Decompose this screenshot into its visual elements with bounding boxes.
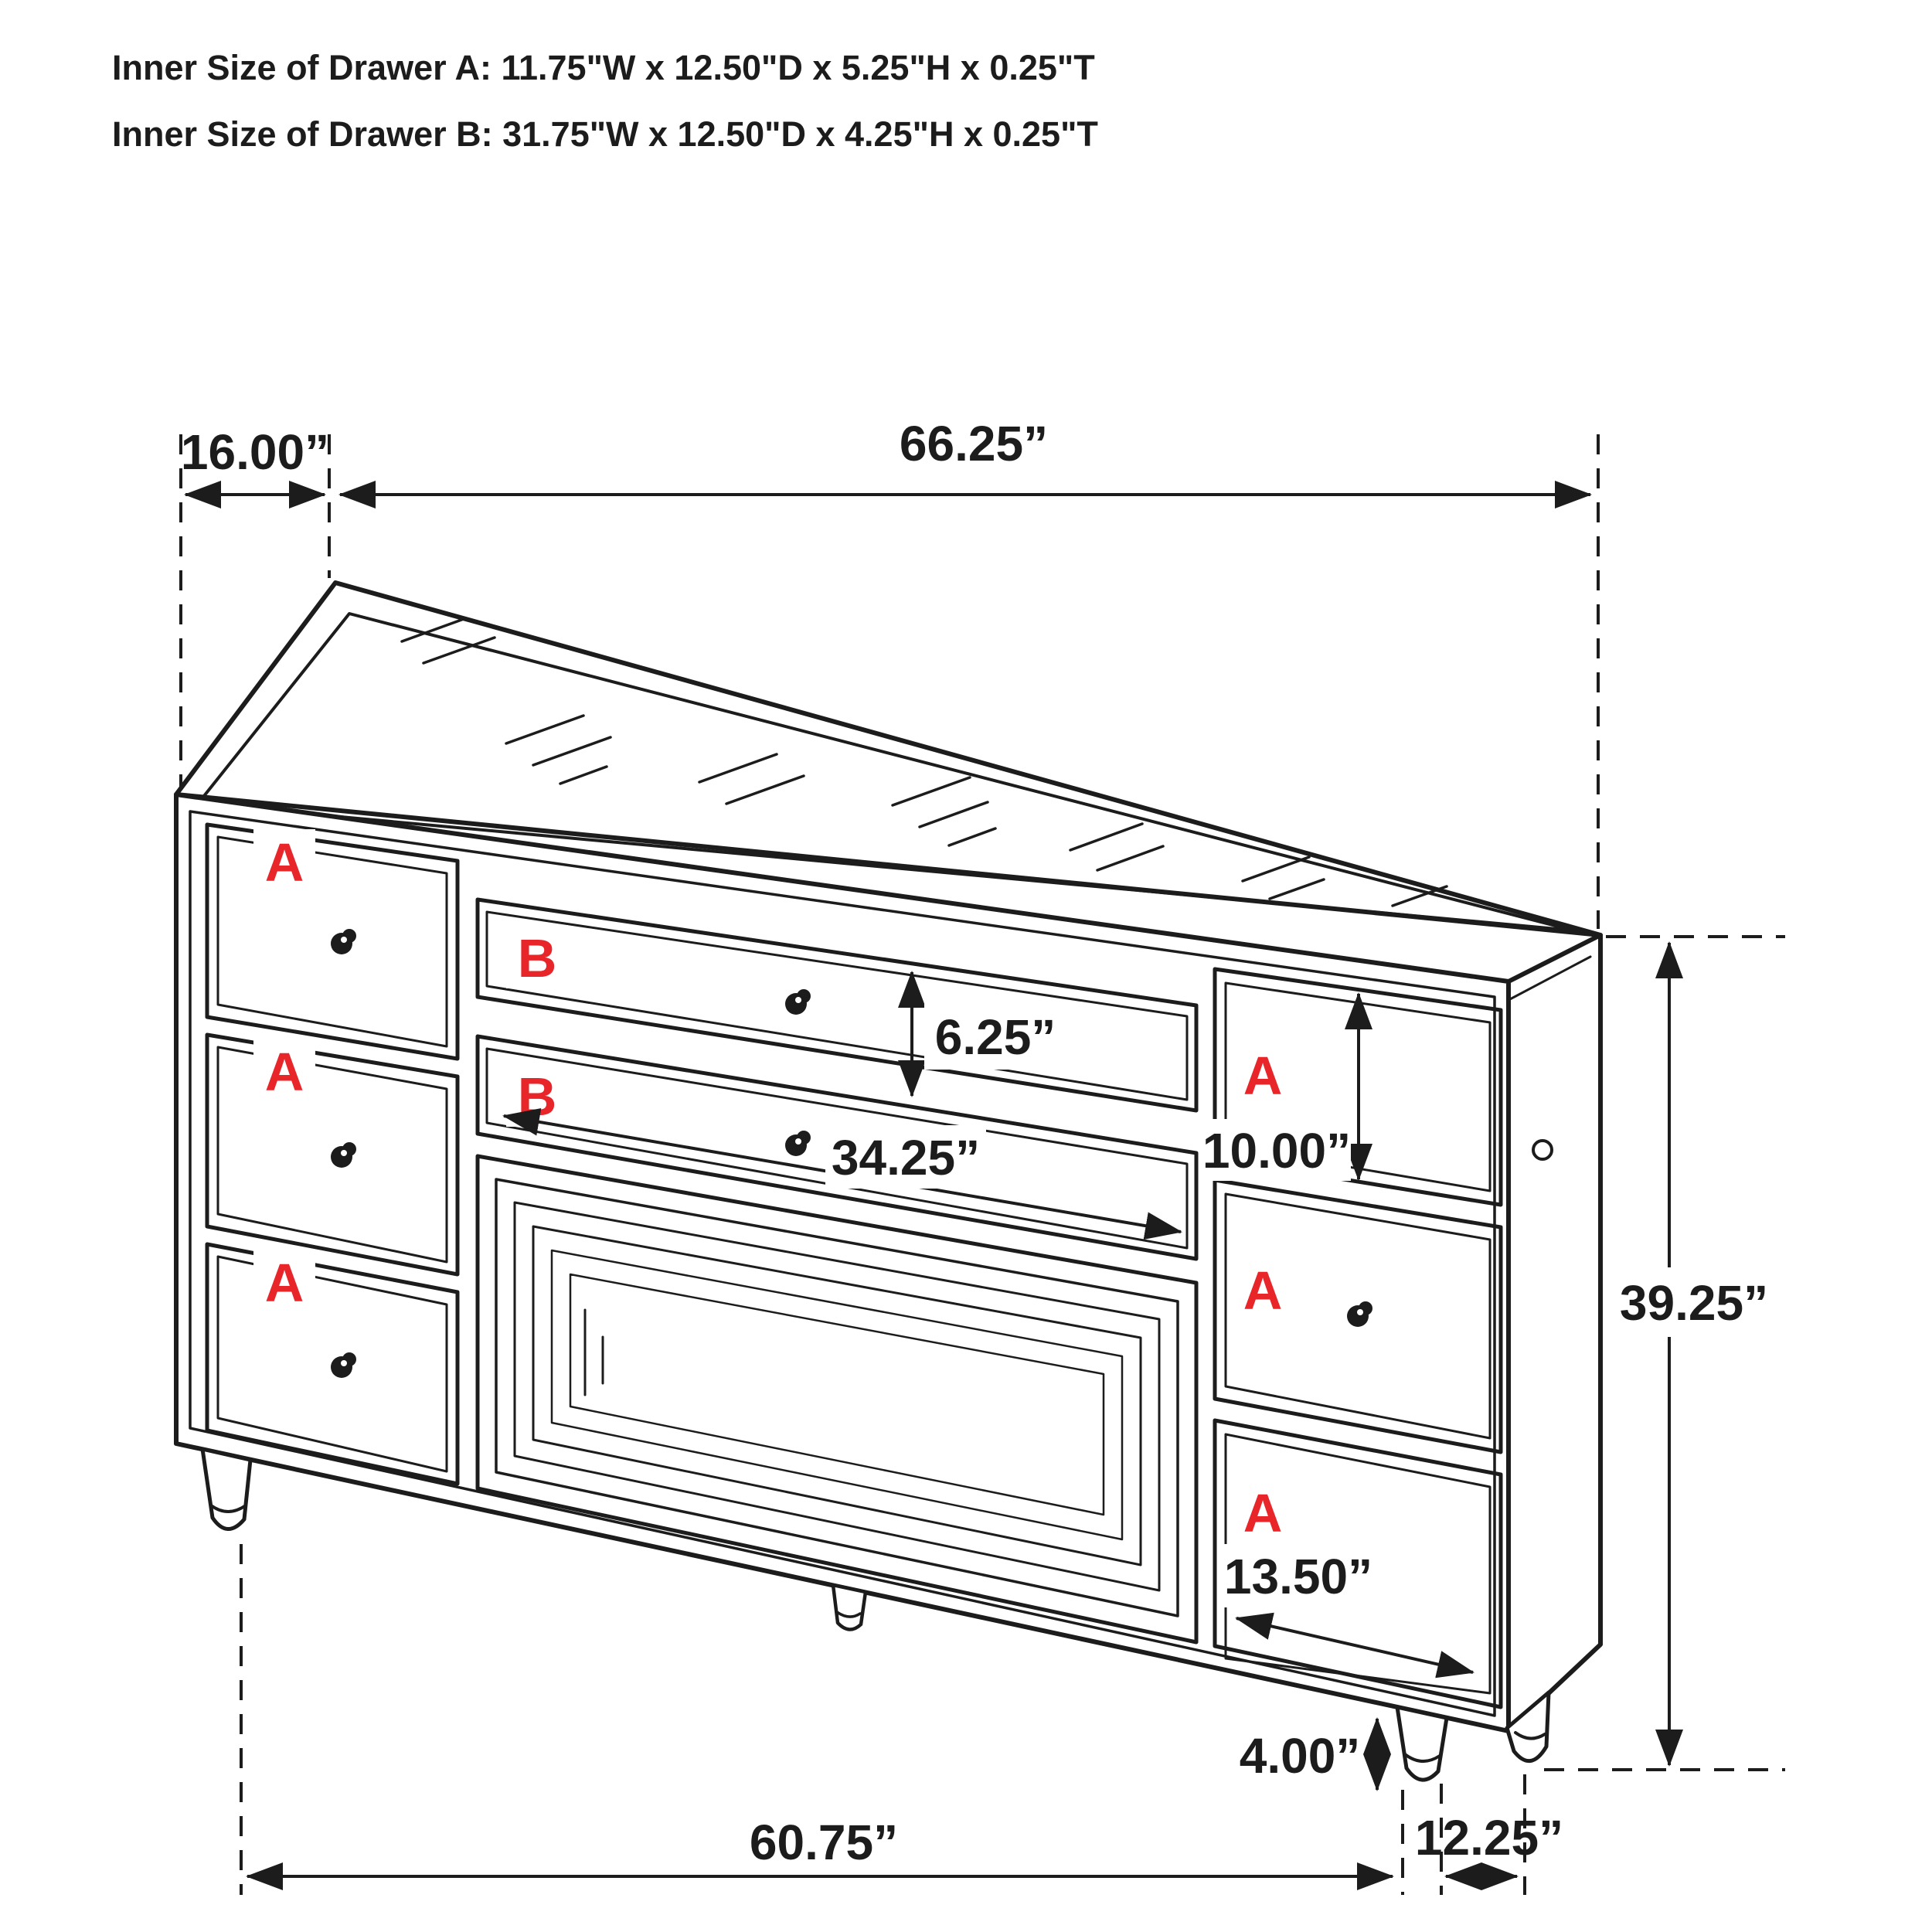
title-line-1: Inner Size of Drawer A: 11.75"W x 12.50"… <box>112 48 1095 87</box>
furniture-dimension-diagram: Inner Size of Drawer A: 11.75"W x 12.50"… <box>0 0 1932 1932</box>
drawer-marker-a-left-3: A <box>265 1253 304 1313</box>
dim-label-right-top-drawer-height: 10.00” <box>1202 1123 1351 1179</box>
dim-label-front-width-at-feet: 60.75” <box>750 1815 898 1870</box>
drawer-marker-b-1: B <box>518 928 557 988</box>
drawer-marker-a-left-1: A <box>265 832 304 893</box>
dim-label-right-bottom-drawer-width: 13.50” <box>1224 1549 1372 1604</box>
drawer-marker-a-right-3: A <box>1243 1483 1283 1543</box>
side-panel-face <box>1509 935 1600 1731</box>
dim-label-foot-height: 4.00” <box>1240 1728 1361 1784</box>
drawer-marker-a-right-1: A <box>1243 1046 1283 1106</box>
foot-middle <box>833 1585 866 1630</box>
title-line-2: Inner Size of Drawer B: 31.75"W x 12.50"… <box>112 114 1098 154</box>
side-panel <box>1509 935 1600 1731</box>
drawer-marker-a-right-2: A <box>1243 1260 1283 1321</box>
dim-label-side-depth-at-feet: 12.25” <box>1415 1810 1563 1866</box>
dim-label-top-width: 66.25” <box>900 416 1048 471</box>
drawer-marker-b-2: B <box>518 1066 557 1127</box>
dim-foot-height: 4.00” <box>1240 1719 1377 1790</box>
dim-label-top-depth: 16.00” <box>181 424 329 480</box>
drawer-marker-a-left-2: A <box>265 1042 304 1102</box>
dim-label-b-drawer-height: 6.25” <box>935 1009 1056 1065</box>
dim-label-overall-height: 39.25” <box>1620 1275 1768 1331</box>
dim-label-b-drawer-width: 34.25” <box>832 1130 980 1185</box>
